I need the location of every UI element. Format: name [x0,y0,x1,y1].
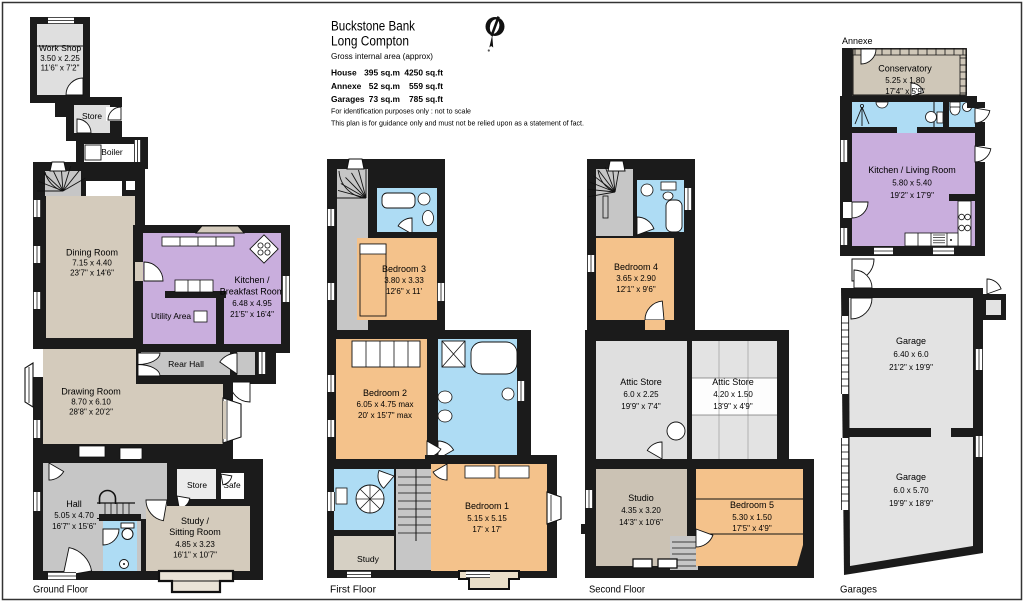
svg-text:Bedroom 2: Bedroom 2 [363,388,407,398]
svg-text:Attic Store: Attic Store [712,377,754,387]
svg-text:Conservatory: Conservatory [878,64,932,74]
svg-text:559 sq.ft: 559 sq.ft [409,81,443,91]
svg-text:5.05 x 4.70: 5.05 x 4.70 [54,511,94,520]
svg-text:Breakfast Room: Breakfast Room [220,287,285,297]
svg-text:Gross internal area (approx): Gross internal area (approx) [331,52,433,61]
svg-text:19'9" x 18'9": 19'9" x 18'9" [889,499,933,508]
svg-text:785 sq.ft: 785 sq.ft [409,94,443,104]
svg-text:Garage: Garage [896,336,926,346]
svg-text:5.15 x 5.15: 5.15 x 5.15 [467,514,507,523]
svg-text:52 sq.m: 52 sq.m [369,81,400,91]
svg-text:This plan is for guidance only: This plan is for guidance only and must … [331,119,584,128]
svg-text:For identification purposes on: For identification purposes only : not t… [331,107,471,116]
svg-text:Buckstone Bank: Buckstone Bank [331,19,415,34]
svg-text:Garages: Garages [331,94,365,104]
svg-text:Sitting Room: Sitting Room [169,527,221,537]
svg-text:395 sq.m: 395 sq.m [364,68,400,78]
svg-text:7.15 x 4.40: 7.15 x 4.40 [72,259,112,268]
svg-text:3.50 x 2.25: 3.50 x 2.25 [40,54,80,63]
svg-text:17' x 17': 17' x 17' [472,525,502,534]
svg-text:Bedroom 3: Bedroom 3 [382,264,426,274]
svg-text:3.65 x 2.90: 3.65 x 2.90 [616,274,656,283]
svg-text:13'9" x 4'9": 13'9" x 4'9" [713,402,753,411]
svg-text:4.35 x 3.20: 4.35 x 3.20 [621,506,661,515]
svg-text:Drawing Room: Drawing Room [61,387,121,397]
svg-text:5.25 x 1.80: 5.25 x 1.80 [885,76,925,85]
svg-text:First Floor: First Floor [330,584,376,596]
svg-text:Dining Room: Dining Room [66,248,118,258]
svg-text:21'2" x 19'9": 21'2" x 19'9" [889,363,933,372]
svg-text:Rear Hall: Rear Hall [168,359,204,369]
svg-text:11'6" x 7'2": 11'6" x 7'2" [41,64,80,73]
svg-text:19'9" x 7'4": 19'9" x 7'4" [621,402,661,411]
svg-text:21'5" x 16'4": 21'5" x 16'4" [230,310,274,319]
svg-text:Study: Study [357,554,380,564]
svg-text:14'3" x 10'6": 14'3" x 10'6" [619,518,663,527]
svg-text:Store: Store [82,111,102,121]
svg-text:Bedroom 4: Bedroom 4 [614,262,658,272]
svg-text:Kitchen /: Kitchen / [234,275,270,285]
svg-text:Store: Store [187,480,207,490]
svg-text:12'6" x 11': 12'6" x 11' [386,287,422,296]
svg-text:Bedroom 5: Bedroom 5 [730,500,774,510]
svg-text:4.85 x 3.23: 4.85 x 3.23 [175,540,215,549]
svg-text:16'1" x 10'7": 16'1" x 10'7" [173,551,217,560]
svg-text:6.0 x 2.25: 6.0 x 2.25 [623,390,659,399]
svg-text:73 sq.m: 73 sq.m [369,94,400,104]
svg-text:Utility Area: Utility Area [151,311,191,321]
svg-text:3.80 x 3.33: 3.80 x 3.33 [384,276,424,285]
svg-text:12'1" x 9'6": 12'1" x 9'6" [616,285,656,294]
svg-text:17'5" x 4'9": 17'5" x 4'9" [732,524,772,533]
svg-text:Annexe: Annexe [331,81,362,91]
svg-text:6.40 x 6.0: 6.40 x 6.0 [893,350,929,359]
svg-text:4250 sq.ft: 4250 sq.ft [404,68,443,78]
svg-text:23'7" x 14'6": 23'7" x 14'6" [70,269,114,278]
svg-text:Studio: Studio [628,493,654,503]
svg-text:Long Compton: Long Compton [331,34,409,49]
svg-text:6.48 x 4.95: 6.48 x 4.95 [232,299,272,308]
svg-text:Boiler: Boiler [101,147,123,157]
svg-text:4.20 x 1.50: 4.20 x 1.50 [713,390,753,399]
svg-text:House: House [331,68,357,78]
svg-text:8.70 x 6.10: 8.70 x 6.10 [71,398,111,407]
svg-text:Hall: Hall [66,499,82,509]
svg-text:5.80 x 5.40: 5.80 x 5.40 [892,179,932,188]
svg-text:Study /: Study / [181,516,210,526]
svg-text:6.05 x 4.75 max: 6.05 x 4.75 max [357,400,414,409]
svg-text:Garage: Garage [896,472,926,482]
svg-text:6.0 x 5.70: 6.0 x 5.70 [893,486,929,495]
svg-text:19'2" x 17'9": 19'2" x 17'9" [890,191,934,200]
svg-text:Attic Store: Attic Store [620,377,662,387]
svg-text:28'8" x 20'2": 28'8" x 20'2" [69,408,113,417]
svg-text:Garages: Garages [840,584,877,596]
svg-text:Kitchen / Living Room: Kitchen / Living Room [868,165,956,175]
svg-text:Second Floor: Second Floor [589,584,645,596]
svg-text:Annexe: Annexe [842,36,873,46]
svg-text:Bedroom 1: Bedroom 1 [465,501,509,511]
svg-text:20' x 15'7" max: 20' x 15'7" max [358,411,412,420]
svg-text:Work Shop: Work Shop [39,43,82,53]
svg-text:17'4" x 5'9": 17'4" x 5'9" [885,87,925,96]
svg-text:16'7" x 15'6": 16'7" x 15'6" [52,522,96,531]
svg-text:5.30 x 1.50: 5.30 x 1.50 [732,513,772,522]
svg-text:Ground Floor: Ground Floor [33,584,88,596]
